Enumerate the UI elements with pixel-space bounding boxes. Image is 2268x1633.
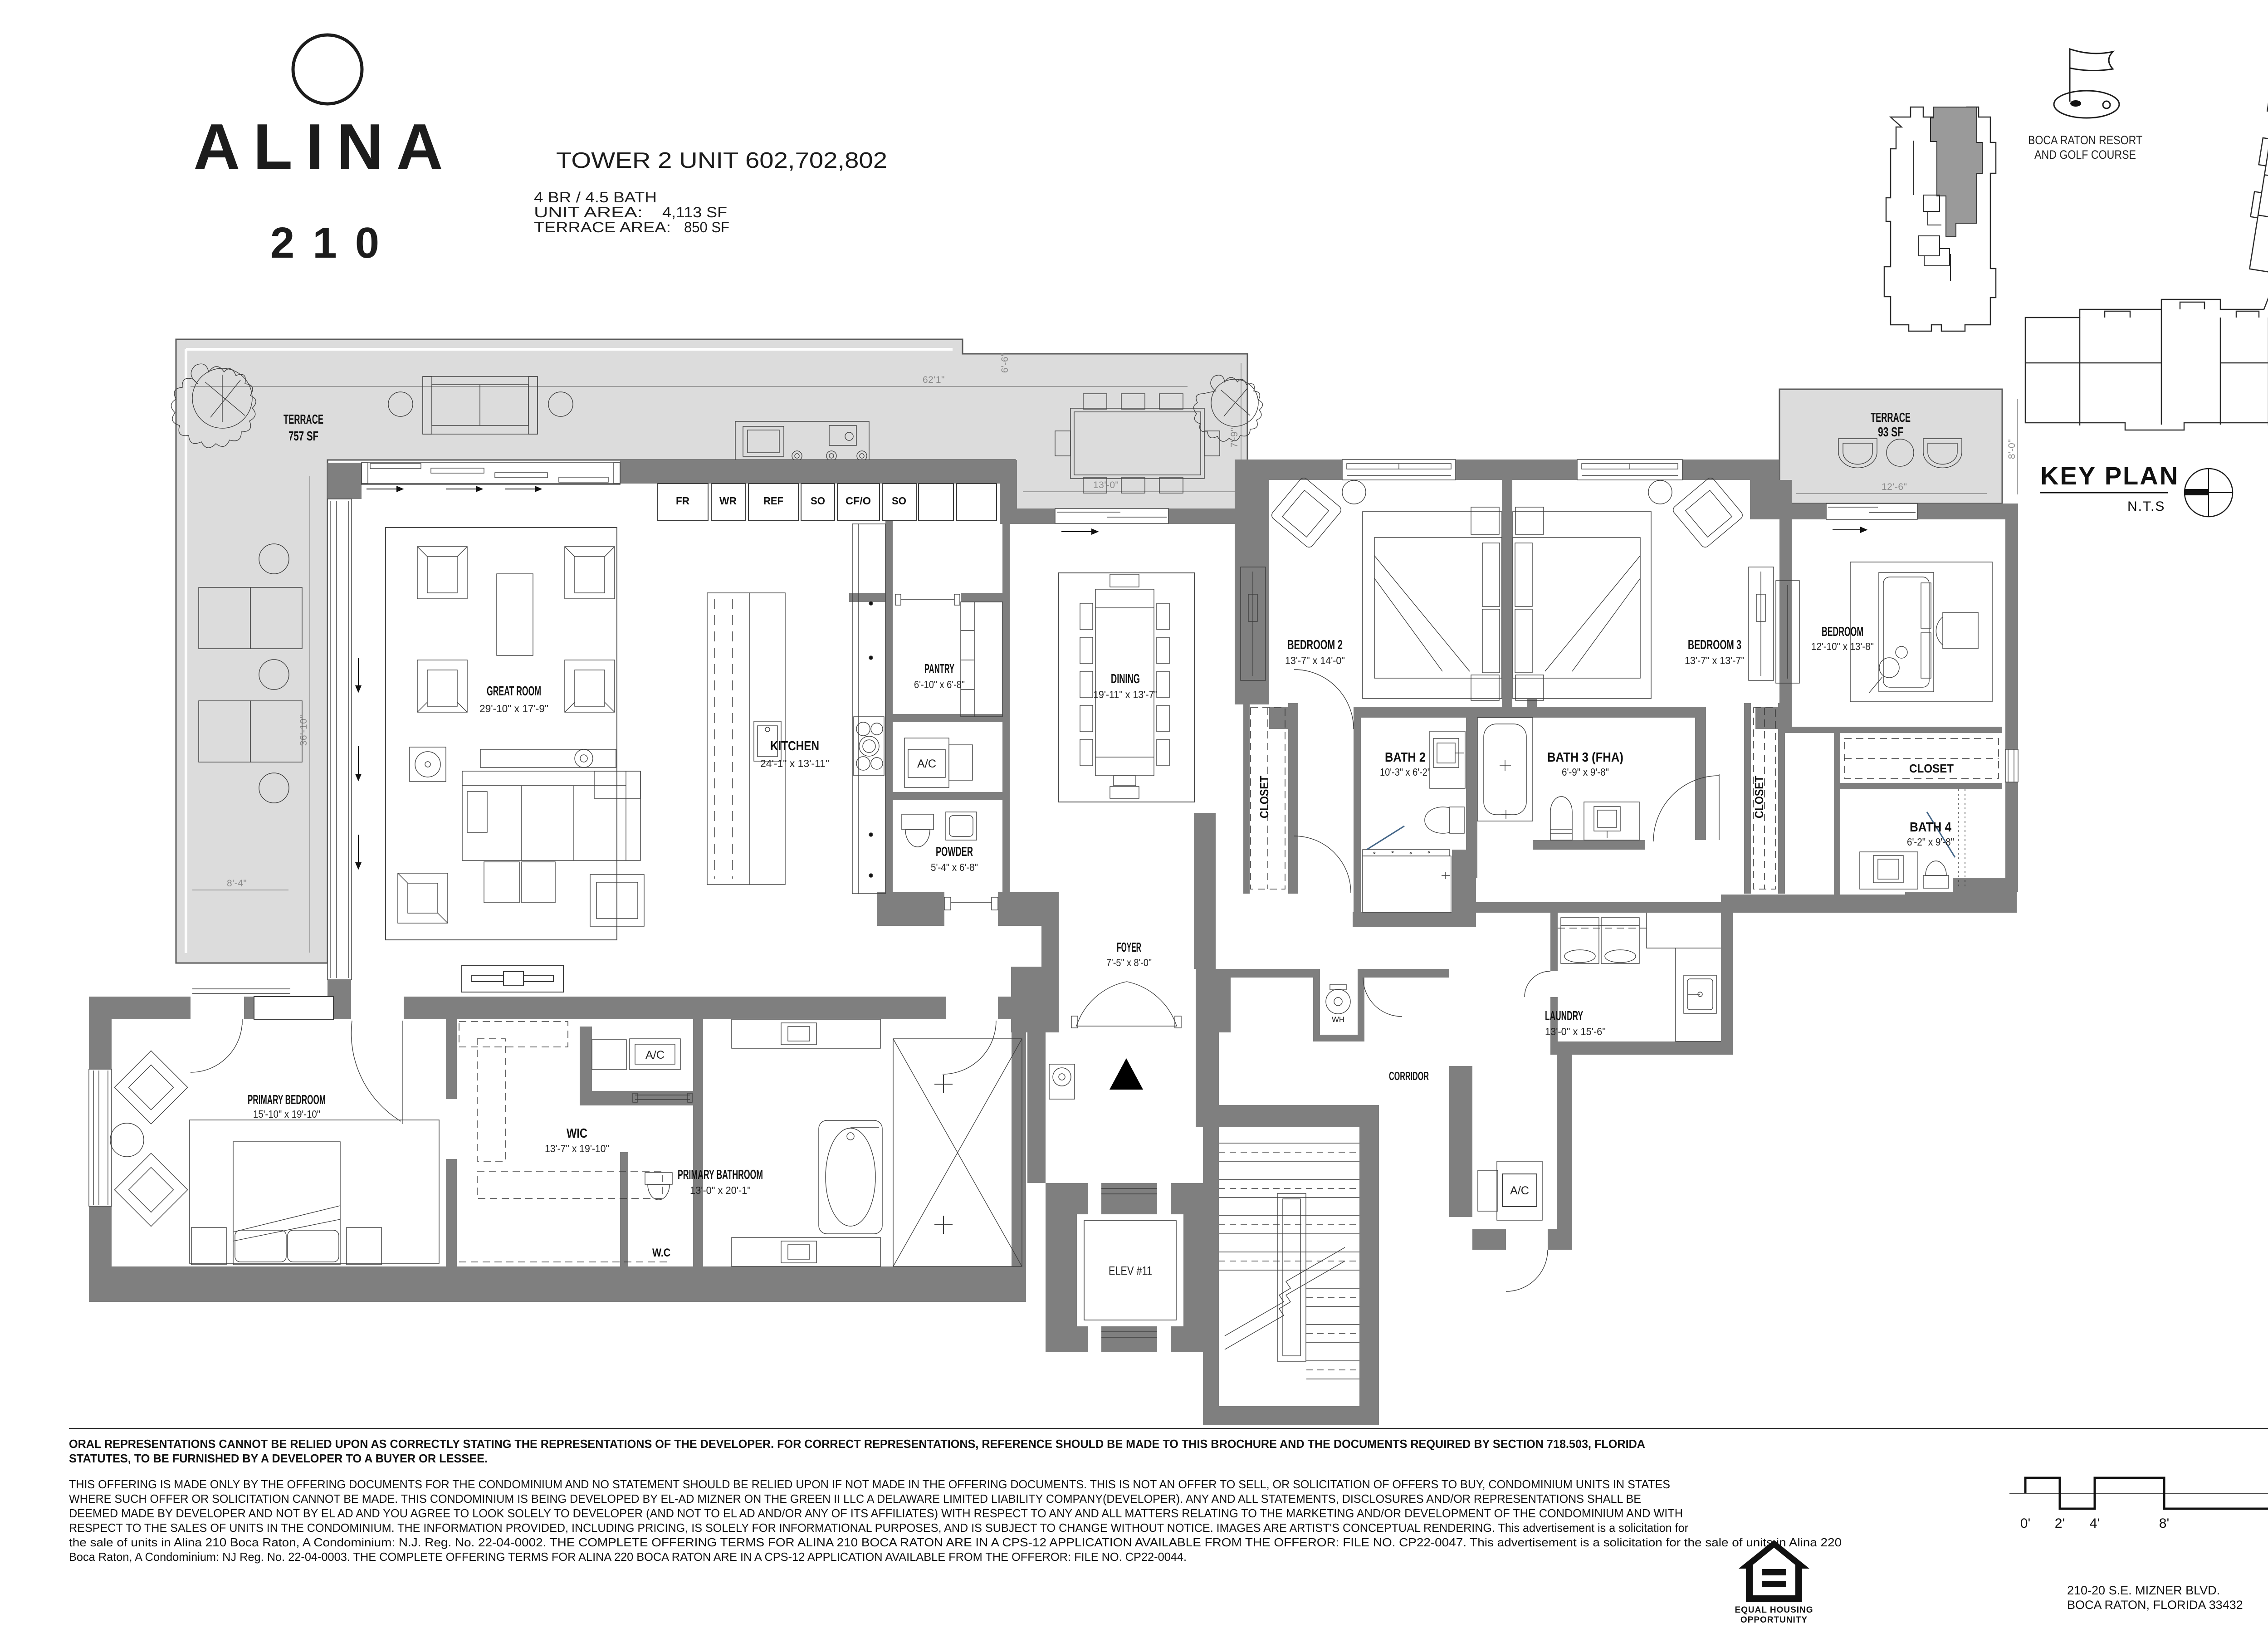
svg-text:757 SF: 757 SF	[288, 429, 318, 444]
svg-text:7'-5" x 8'-0": 7'-5" x 8'-0"	[1106, 957, 1152, 968]
svg-text:13'-7" x 19'-10": 13'-7" x 19'-10"	[545, 1143, 609, 1154]
svg-text:2': 2'	[2055, 1516, 2065, 1531]
svg-text:BEDROOM 3: BEDROOM 3	[1688, 638, 1741, 652]
svg-text:8'-0": 8'-0"	[2007, 439, 2017, 459]
svg-text:A/C: A/C	[1510, 1184, 1529, 1197]
svg-text:5'-4" x 6'-8": 5'-4" x 6'-8"	[931, 861, 978, 873]
svg-text:850 SF: 850 SF	[684, 219, 729, 235]
svg-text:WH: WH	[1332, 1015, 1344, 1024]
svg-text:FR: FR	[676, 495, 689, 507]
svg-text:13'-0": 13'-0"	[1093, 480, 1119, 490]
svg-text:KEY PLAN: KEY PLAN	[2040, 461, 2179, 490]
svg-text:7'-9": 7'-9"	[1229, 428, 1240, 448]
svg-text:POWDER: POWDER	[936, 845, 973, 859]
svg-text:29'-10" x 17'-9": 29'-10" x 17'-9"	[479, 703, 548, 714]
svg-text:A/C: A/C	[645, 1049, 665, 1061]
svg-text:15'-10" x 19'-10": 15'-10" x 19'-10"	[253, 1108, 320, 1120]
svg-text:13'-7" x 14'-0": 13'-7" x 14'-0"	[1285, 655, 1345, 666]
svg-text:TOWER 2 UNIT 602,702,802: TOWER 2 UNIT 602,702,802	[556, 148, 887, 173]
svg-text:A/C: A/C	[917, 758, 936, 770]
svg-text:WR: WR	[719, 495, 737, 507]
svg-text:the sale of units in Alina 210: the sale of units in Alina 210 Boca Rato…	[69, 1535, 1842, 1549]
svg-text:10'-3" x 6'-2": 10'-3" x 6'-2"	[1380, 766, 1431, 778]
svg-text:4': 4'	[2090, 1516, 2100, 1531]
svg-text:STATUTES, TO BE FURNISHED BY A: STATUTES, TO BE FURNISHED BY A DEVELOPER…	[69, 1452, 488, 1465]
svg-text:CLOSET: CLOSET	[1752, 776, 1766, 818]
svg-text:12'-6": 12'-6"	[1882, 482, 1907, 492]
svg-text:SO: SO	[811, 495, 825, 507]
svg-text:AND GOLF COURSE: AND GOLF COURSE	[2034, 148, 2136, 161]
svg-text:ORAL REPRESENTATIONS CANNOT BE: ORAL REPRESENTATIONS CANNOT BE RELIED UP…	[69, 1437, 1645, 1451]
svg-text:LAUNDRY: LAUNDRY	[1545, 1009, 1583, 1023]
svg-text:SO: SO	[892, 495, 906, 507]
svg-text:OPPORTUNITY: OPPORTUNITY	[1740, 1615, 1808, 1625]
svg-text:W.C: W.C	[652, 1247, 670, 1259]
svg-text:13'-0" x 20'-1": 13'-0" x 20'-1"	[690, 1184, 751, 1196]
svg-text:TERRACE: TERRACE	[1871, 411, 1911, 425]
svg-text:KITCHEN: KITCHEN	[770, 739, 819, 753]
svg-text:PANTRY: PANTRY	[924, 662, 954, 676]
svg-text:6'-6": 6'-6"	[1000, 353, 1010, 373]
svg-text:PRIMARY BATHROOM: PRIMARY BATHROOM	[678, 1168, 763, 1182]
svg-text:13'-0" x 15'-6": 13'-0" x 15'-6"	[1545, 1026, 1606, 1037]
svg-text:ALINA: ALINA	[194, 111, 456, 183]
svg-text:RESPECT TO THE SALES OF UNITS: RESPECT TO THE SALES OF UNITS IN THE CON…	[69, 1521, 1688, 1535]
svg-text:4 BR / 4.5 BATH: 4 BR / 4.5 BATH	[534, 189, 657, 205]
svg-text:210-20 S.E. MIZNER BLVD.: 210-20 S.E. MIZNER BLVD.	[2067, 1584, 2220, 1597]
svg-text:93 SF: 93 SF	[1878, 425, 1903, 440]
svg-text:CLOSET: CLOSET	[1909, 762, 1954, 775]
svg-text:CLOSET: CLOSET	[1257, 776, 1271, 818]
svg-text:36'-10": 36'-10"	[298, 715, 309, 746]
svg-text:THIS OFFERING IS MADE ONLY BY: THIS OFFERING IS MADE ONLY BY THE OFFERI…	[69, 1477, 1670, 1491]
svg-text:REF: REF	[763, 495, 783, 507]
svg-text:19'-11" x 13'-7": 19'-11" x 13'-7"	[1093, 689, 1158, 700]
svg-text:BEDROOM 2: BEDROOM 2	[1287, 638, 1343, 652]
svg-text:EQUAL HOUSING: EQUAL HOUSING	[1735, 1605, 1813, 1615]
svg-text:ELEV #11: ELEV #11	[1109, 1264, 1152, 1277]
svg-text:13'-7" x 13'-7": 13'-7" x 13'-7"	[1685, 655, 1745, 666]
svg-text:CF/O: CF/O	[846, 495, 871, 507]
svg-text:WHERE SUCH OFFER OR SOLICITATI: WHERE SUCH OFFER OR SOLICITATION CANNOT …	[69, 1492, 1641, 1506]
svg-text:BATH 3 (FHA): BATH 3 (FHA)	[1547, 750, 1623, 765]
svg-text:Boca Raton, A Condominium: NJ: Boca Raton, A Condominium: NJ Reg. No. 2…	[69, 1550, 1187, 1564]
svg-text:62'1": 62'1"	[923, 375, 945, 385]
svg-text:6'-10" x 6'-8": 6'-10" x 6'-8"	[914, 679, 965, 690]
svg-text:GREAT ROOM: GREAT ROOM	[487, 684, 541, 699]
svg-text:24'-1" x 13'-11": 24'-1" x 13'-11"	[760, 758, 829, 769]
svg-text:BOCA RATON, FLORIDA 33432: BOCA RATON, FLORIDA 33432	[2067, 1598, 2243, 1612]
svg-text:8'-4": 8'-4"	[227, 878, 247, 889]
svg-text:0': 0'	[2020, 1516, 2030, 1531]
svg-text:PRIMARY BEDROOM: PRIMARY BEDROOM	[248, 1093, 326, 1107]
svg-text:6'-9" x 9'-8": 6'-9" x 9'-8"	[1562, 766, 1609, 778]
svg-text:210: 210	[270, 219, 397, 267]
svg-text:DINING: DINING	[1111, 672, 1140, 686]
svg-text:DEEMED MADE BY DEVELOPER AND N: DEEMED MADE BY DEVELOPER AND NOT BY EL A…	[69, 1506, 1683, 1520]
svg-text:TERRACE AREA:: TERRACE AREA:	[534, 219, 671, 235]
svg-text:BATH 2: BATH 2	[1385, 750, 1426, 765]
svg-text:BOCA RATON RESORT: BOCA RATON RESORT	[2028, 133, 2142, 147]
svg-text:4,113 SF: 4,113 SF	[662, 204, 727, 220]
svg-text:8': 8'	[2159, 1516, 2169, 1531]
svg-text:CORRIDOR: CORRIDOR	[1389, 1069, 1429, 1083]
svg-text:UNIT AREA:: UNIT AREA:	[534, 204, 643, 220]
svg-text:BATH 4: BATH 4	[1910, 820, 1951, 835]
svg-text:WIC: WIC	[567, 1126, 587, 1141]
svg-text:TERRACE: TERRACE	[283, 412, 323, 427]
svg-text:FOYER: FOYER	[1117, 940, 1141, 955]
svg-text:BEDROOM: BEDROOM	[1822, 625, 1863, 639]
svg-text:N.T.S: N.T.S	[2127, 499, 2165, 514]
svg-text:12'-10" x 13'-8": 12'-10" x 13'-8"	[1811, 640, 1874, 652]
svg-text:6'-2" x 9'-8": 6'-2" x 9'-8"	[1907, 836, 1954, 848]
